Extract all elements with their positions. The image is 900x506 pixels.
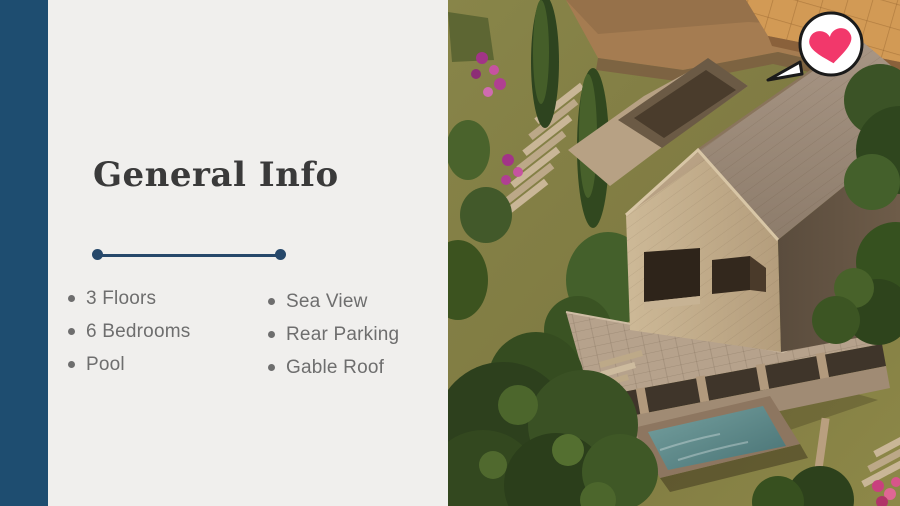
bullet-dot-icon bbox=[268, 298, 275, 305]
bullet-dot-icon bbox=[268, 331, 275, 338]
info-panel: General Info 3 Floors 6 Bedrooms Pool Se… bbox=[48, 0, 448, 506]
feature-label: Rear Parking bbox=[286, 324, 399, 346]
feature-label: Gable Roof bbox=[286, 357, 384, 379]
page-title: General Info bbox=[93, 155, 339, 195]
list-item: 6 Bedrooms bbox=[68, 315, 190, 348]
title-divider bbox=[92, 249, 286, 261]
left-accent-bar bbox=[0, 0, 48, 506]
list-item: Rear Parking bbox=[268, 318, 399, 351]
slide: General Info 3 Floors 6 Bedrooms Pool Se… bbox=[0, 0, 900, 506]
list-item: Sea View bbox=[268, 285, 399, 318]
list-item: Pool bbox=[68, 348, 190, 381]
bullet-dot-icon bbox=[268, 364, 275, 371]
feature-label: 6 Bedrooms bbox=[86, 321, 190, 343]
feature-list-right: Sea View Rear Parking Gable Roof bbox=[268, 285, 399, 384]
bullet-dot-icon bbox=[68, 361, 75, 368]
feature-label: Sea View bbox=[286, 291, 368, 313]
list-item: Gable Roof bbox=[268, 351, 399, 384]
property-aerial-render bbox=[448, 0, 900, 506]
feature-label: 3 Floors bbox=[86, 288, 156, 310]
divider-dot-right bbox=[275, 249, 286, 260]
bullet-dot-icon bbox=[68, 328, 75, 335]
list-item: 3 Floors bbox=[68, 282, 190, 315]
feature-label: Pool bbox=[86, 354, 125, 376]
feature-list-left: 3 Floors 6 Bedrooms Pool bbox=[68, 282, 190, 381]
bullet-dot-icon bbox=[68, 295, 75, 302]
divider-line bbox=[96, 254, 282, 257]
